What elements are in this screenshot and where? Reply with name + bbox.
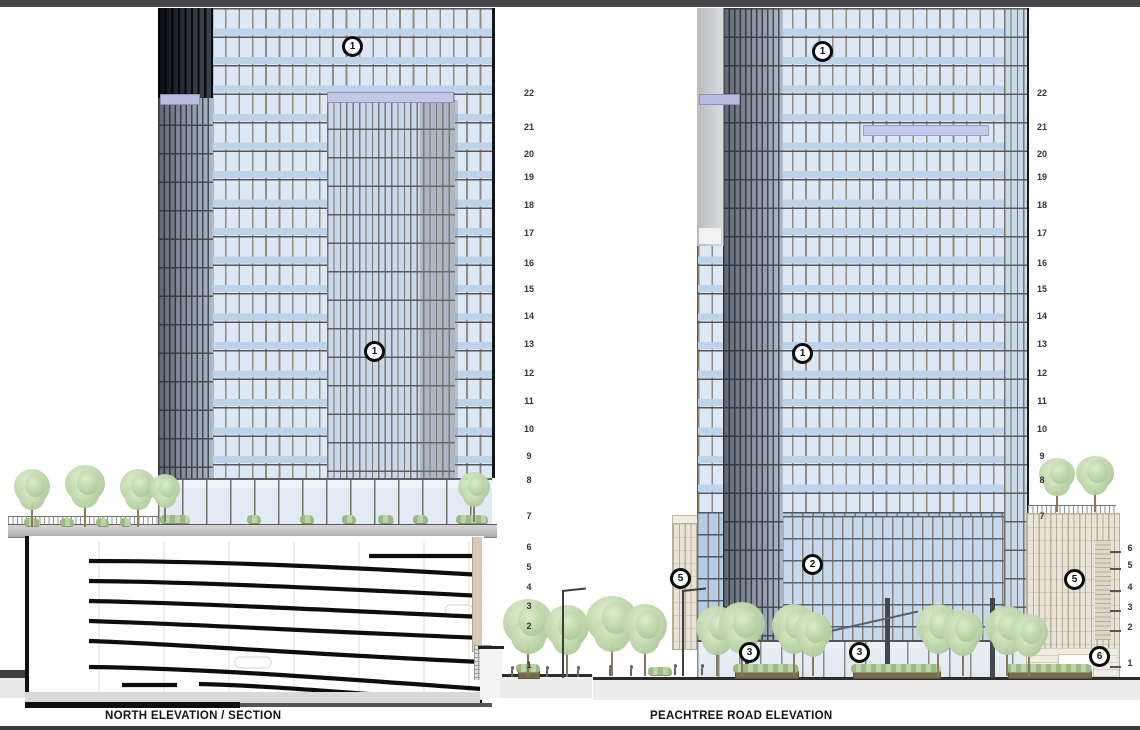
floor-label: 17 bbox=[521, 228, 537, 238]
floor-label: 18 bbox=[1034, 200, 1050, 210]
floor-label: 8 bbox=[1034, 475, 1050, 485]
floor-label: 7 bbox=[1034, 511, 1050, 521]
floor-label: 19 bbox=[521, 172, 537, 182]
keynote-callout-1: 1 bbox=[792, 343, 813, 364]
bottom-border-line bbox=[0, 726, 1140, 730]
floor-label: 4 bbox=[1122, 582, 1138, 592]
keynote-callout-2: 2 bbox=[802, 554, 823, 575]
floor-label: 4 bbox=[521, 582, 537, 592]
floor-label: 1 bbox=[521, 660, 537, 670]
floor-label: 18 bbox=[521, 200, 537, 210]
annotation-layer: 2221201918171615141312111098765432122212… bbox=[0, 0, 1140, 730]
floor-tick bbox=[1110, 630, 1121, 632]
floor-label: 14 bbox=[521, 311, 537, 321]
floor-label: 10 bbox=[1034, 424, 1050, 434]
floor-label: 10 bbox=[521, 424, 537, 434]
top-border-bar bbox=[0, 0, 1140, 7]
floor-tick bbox=[1110, 610, 1121, 612]
north-elevation-title: NORTH ELEVATION / SECTION bbox=[105, 710, 281, 722]
keynote-callout-1: 1 bbox=[812, 41, 833, 62]
floor-label: 5 bbox=[1122, 560, 1138, 570]
floor-label: 3 bbox=[521, 601, 537, 611]
floor-label: 3 bbox=[1122, 602, 1138, 612]
floor-label: 22 bbox=[1034, 88, 1050, 98]
floor-label: 12 bbox=[1034, 368, 1050, 378]
floor-label: 2 bbox=[1122, 622, 1138, 632]
keynote-callout-5: 5 bbox=[670, 568, 691, 589]
floor-label: 21 bbox=[521, 122, 537, 132]
elevation-sheet: 2221201918171615141312111098765432122212… bbox=[0, 0, 1140, 730]
floor-label: 16 bbox=[521, 258, 537, 268]
floor-tick bbox=[1110, 551, 1121, 553]
keynote-callout-3: 3 bbox=[849, 642, 870, 663]
floor-label: 19 bbox=[1034, 172, 1050, 182]
floor-tick bbox=[1110, 666, 1121, 668]
floor-label: 21 bbox=[1034, 122, 1050, 132]
floor-label: 1 bbox=[1122, 658, 1138, 668]
floor-label: 22 bbox=[521, 88, 537, 98]
floor-label: 9 bbox=[1034, 451, 1050, 461]
floor-label: 11 bbox=[1034, 396, 1050, 406]
floor-label: 5 bbox=[521, 562, 537, 572]
floor-label: 20 bbox=[521, 149, 537, 159]
floor-label: 13 bbox=[521, 339, 537, 349]
keynote-callout-3: 3 bbox=[739, 642, 760, 663]
floor-label: 7 bbox=[521, 511, 537, 521]
floor-label: 20 bbox=[1034, 149, 1050, 159]
floor-label: 2 bbox=[521, 621, 537, 631]
floor-tick bbox=[1110, 568, 1121, 570]
keynote-callout-1: 1 bbox=[364, 341, 385, 362]
floor-label: 13 bbox=[1034, 339, 1050, 349]
peachtree-elevation-title: PEACHTREE ROAD ELEVATION bbox=[650, 710, 832, 722]
floor-tick bbox=[1110, 590, 1121, 592]
keynote-callout-1: 1 bbox=[342, 36, 363, 57]
floor-label: 11 bbox=[521, 396, 537, 406]
floor-label: 15 bbox=[1034, 284, 1050, 294]
floor-label: 12 bbox=[521, 368, 537, 378]
floor-label: 15 bbox=[521, 284, 537, 294]
floor-label: 6 bbox=[521, 542, 537, 552]
floor-label: 17 bbox=[1034, 228, 1050, 238]
floor-label: 6 bbox=[1122, 543, 1138, 553]
floor-label: 16 bbox=[1034, 258, 1050, 268]
keynote-callout-6: 6 bbox=[1089, 646, 1110, 667]
floor-label: 8 bbox=[521, 475, 537, 485]
floor-label: 9 bbox=[521, 451, 537, 461]
keynote-callout-5: 5 bbox=[1064, 569, 1085, 590]
floor-label: 14 bbox=[1034, 311, 1050, 321]
